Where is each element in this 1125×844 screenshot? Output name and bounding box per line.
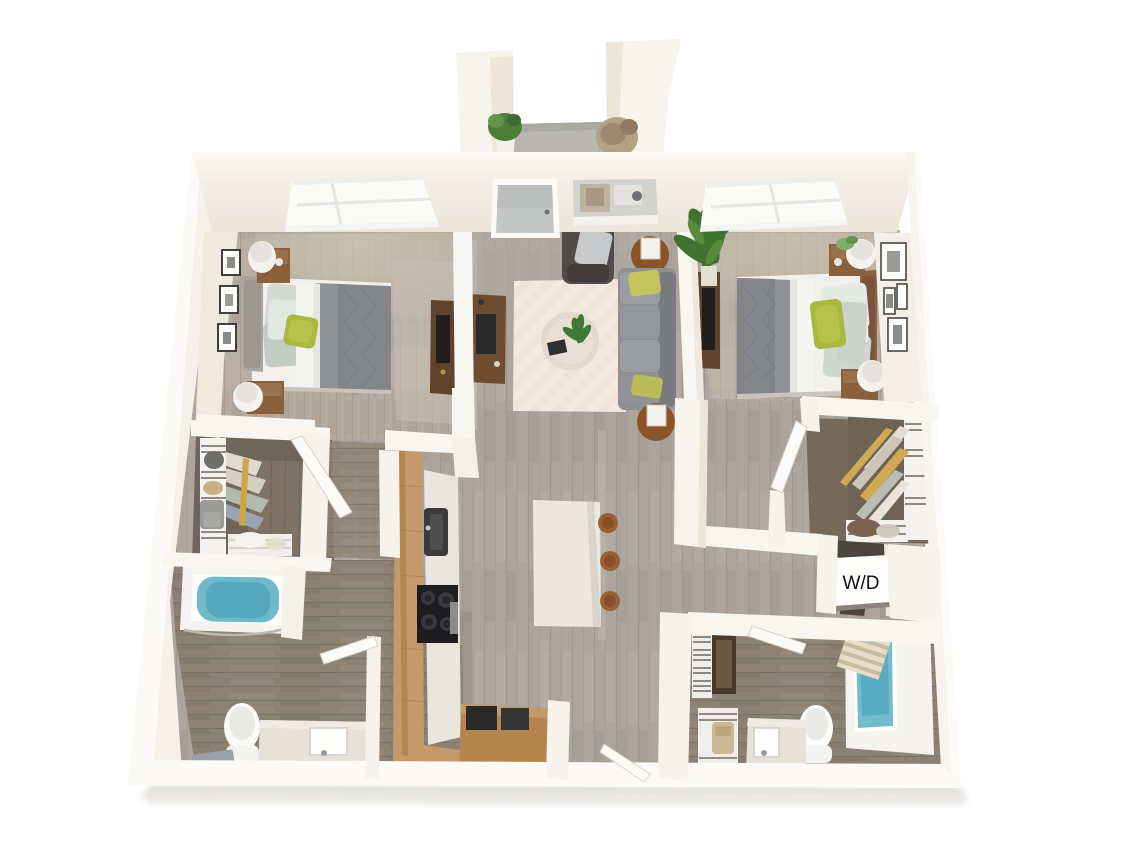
svg-text:W/D: W/D — [843, 573, 880, 594]
